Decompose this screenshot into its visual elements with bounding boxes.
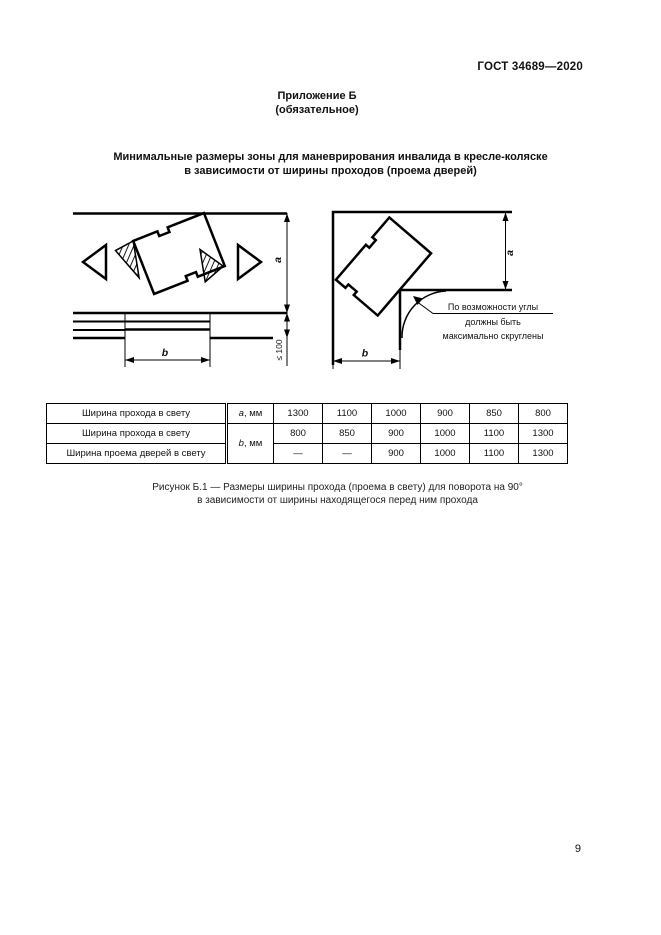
row-label: Ширина проема дверей в свету — [47, 444, 227, 464]
table-row: Ширина прохода в свету a, мм 1300 1100 1… — [47, 404, 568, 424]
direction-arrow-left-icon — [83, 245, 106, 279]
cell-value: 1000 — [421, 444, 470, 464]
dimensions-table: Ширина прохода в свету a, мм 1300 1100 1… — [46, 403, 568, 464]
table-row: Ширина проема дверей в свету — — 900 100… — [47, 444, 568, 464]
wheelchair-body — [133, 213, 225, 294]
wheelchair-top-view — [115, 213, 228, 308]
dim-a-label: a — [504, 250, 516, 256]
dimension-a-left: a ≤ 100 — [272, 213, 290, 366]
row-label: Ширина прохода в свету — [47, 404, 227, 424]
offset-100-label: ≤ 100 — [274, 339, 284, 360]
cell-value: 1100 — [323, 404, 372, 424]
cell-value: 1100 — [470, 444, 519, 464]
cell-value: 1000 — [372, 404, 421, 424]
cell-value: 900 — [372, 424, 421, 444]
cell-value: 1100 — [470, 424, 519, 444]
corner-note-line2: должны быть — [465, 317, 521, 327]
param-unit: , мм — [244, 408, 262, 419]
right-diagram: По возможности углы должны быть максимал… — [333, 212, 553, 369]
arrowhead — [201, 357, 210, 363]
dim-b-label: b — [162, 347, 169, 359]
section-title: Минимальные размеры зоны для маневрирова… — [0, 151, 661, 178]
cell-value: — — [274, 444, 323, 464]
cell-value: 850 — [323, 424, 372, 444]
cell-value: 900 — [421, 404, 470, 424]
cell-value: 800 — [519, 404, 568, 424]
section-title-line2: в зависимости от ширины проходов (проема… — [0, 165, 661, 179]
cell-value: 1300 — [274, 404, 323, 424]
arrowhead — [284, 313, 290, 322]
section-title-line1: Минимальные размеры зоны для маневрирова… — [0, 151, 661, 165]
dimension-a-right: a — [503, 212, 517, 290]
page-number: 9 — [575, 843, 581, 855]
arrowhead — [391, 358, 400, 364]
arrowhead — [125, 357, 134, 363]
corner-note-line1: По возможности углы — [448, 302, 538, 312]
leader-arrow-icon — [413, 296, 423, 305]
figure-caption: Рисунок Б.1 — Размеры ширины прохода (пр… — [7, 481, 661, 507]
arrowhead — [333, 358, 342, 364]
arrowhead — [503, 281, 509, 290]
appendix-heading: Приложение Б (обязательное) — [0, 90, 634, 117]
arrowhead — [284, 305, 290, 314]
row-param: a, мм — [227, 404, 274, 424]
param-unit: , мм — [244, 438, 262, 449]
dim-b-label: b — [362, 348, 369, 360]
figure-b1: b a ≤ 100 — [60, 200, 600, 380]
cell-value: — — [323, 444, 372, 464]
appendix-title: Приложение Б — [0, 90, 634, 104]
left-diagram: b a ≤ 100 — [73, 213, 290, 367]
figure-caption-line2: в зависимости от ширины находящегося пер… — [7, 494, 661, 507]
row-label: Ширина прохода в свету — [47, 424, 227, 444]
corner-rounding-arc — [402, 291, 446, 338]
document-page: ГОСТ 34689—2020 Приложение Б (обязательн… — [0, 0, 661, 935]
direction-arrow-right-icon — [238, 245, 261, 279]
dimension-b-right: b — [333, 348, 400, 370]
cell-value: 1000 — [421, 424, 470, 444]
table-row: Ширина прохода в свету b, мм 800 850 900… — [47, 424, 568, 444]
cell-value: 900 — [372, 444, 421, 464]
cell-value: 1300 — [519, 424, 568, 444]
arrowhead — [284, 214, 290, 223]
appendix-type: (обязательное) — [0, 104, 634, 118]
dim-a-label: a — [272, 257, 284, 263]
cell-value: 850 — [470, 404, 519, 424]
cell-value: 1300 — [519, 444, 568, 464]
cell-value: 800 — [274, 424, 323, 444]
figure-caption-line1: Рисунок Б.1 — Размеры ширины прохода (пр… — [7, 481, 661, 494]
leader-line — [416, 301, 433, 314]
arrowhead — [503, 213, 509, 222]
arrowhead — [284, 330, 290, 339]
doc-code: ГОСТ 34689—2020 — [477, 61, 583, 73]
row-param: b, мм — [227, 424, 274, 464]
corner-note-line3: максимально скруглены — [443, 331, 544, 341]
